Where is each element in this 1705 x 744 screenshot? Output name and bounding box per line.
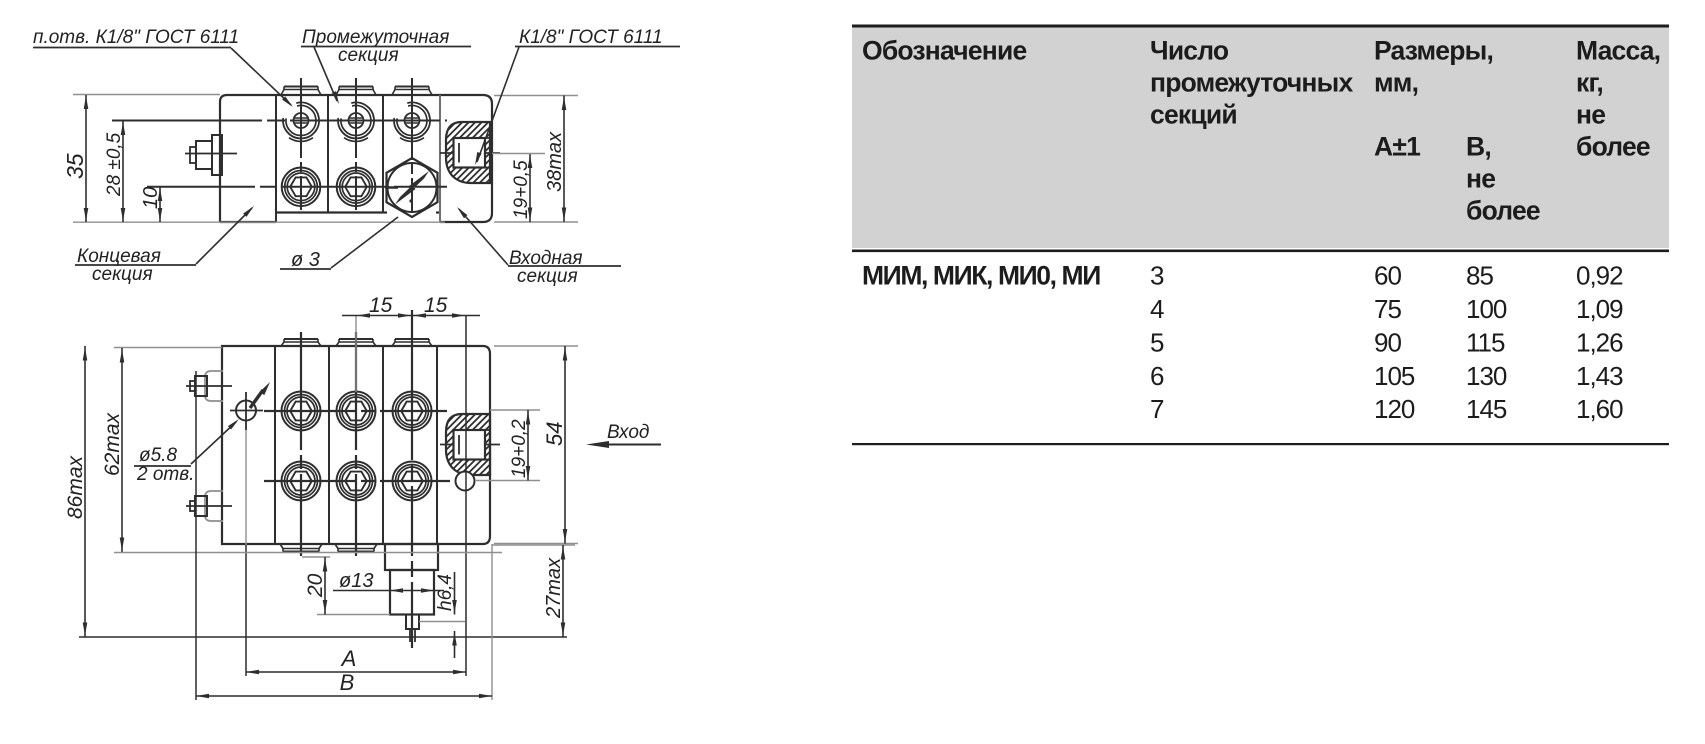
svg-text:20: 20 [304,573,327,598]
svg-text:Обозначение: Обозначение [862,36,1026,66]
svg-text:секция: секция [517,266,578,287]
svg-text:А±1: А±1 [1374,132,1420,162]
svg-text:15: 15 [424,294,448,317]
svg-text:А: А [340,646,357,671]
svg-text:85: 85 [1466,261,1493,291]
svg-text:не: не [1576,100,1605,130]
svg-text:К1/8" ГОСТ 6111: К1/8" ГОСТ 6111 [519,27,663,48]
svg-text:В,: В, [1466,132,1491,162]
svg-text:62max: 62max [101,411,124,476]
svg-text:19+0,2: 19+0,2 [509,419,530,478]
svg-text:35: 35 [62,153,88,179]
svg-text:4: 4 [1150,294,1164,324]
svg-text:60: 60 [1374,261,1401,291]
svg-text:В: В [340,670,355,695]
svg-text:более: более [1466,196,1540,226]
svg-text:100: 100 [1466,294,1507,324]
svg-text:1,09: 1,09 [1576,294,1623,324]
svg-text:мм,: мм, [1374,68,1418,98]
svg-text:не: не [1466,164,1495,194]
svg-text:3: 3 [1150,261,1164,291]
svg-text:Размеры,: Размеры, [1374,36,1493,66]
svg-text:15: 15 [369,294,393,317]
svg-text:86max: 86max [64,454,87,519]
svg-text:1,60: 1,60 [1576,394,1623,424]
svg-text:19+0,5: 19+0,5 [511,160,532,219]
svg-text:Число: Число [1150,36,1229,66]
svg-text:145: 145 [1466,394,1507,424]
svg-text:секция: секция [338,45,399,66]
svg-text:промежуточных: промежуточных [1150,68,1353,98]
svg-text:1,43: 1,43 [1576,361,1623,391]
svg-text:75: 75 [1374,294,1401,324]
svg-text:п.отв. К1/8" ГОСТ 6111: п.отв. К1/8" ГОСТ 6111 [33,27,239,48]
svg-text:более: более [1576,132,1650,162]
svg-text:130: 130 [1466,361,1507,391]
svg-text:h6,4: h6,4 [435,574,456,611]
svg-text:ø 3: ø 3 [291,249,320,271]
svg-text:МИМ, МИК, МИ0, МИ: МИМ, МИК, МИ0, МИ [862,261,1100,291]
svg-text:секция: секция [92,264,153,285]
svg-text:ø5.8: ø5.8 [139,445,177,466]
svg-text:115: 115 [1466,328,1505,358]
svg-text:54: 54 [542,422,567,446]
svg-text:38max: 38max [544,131,566,192]
svg-text:10: 10 [140,187,162,209]
svg-text:0,92: 0,92 [1576,261,1623,291]
svg-text:Масса,: Масса, [1576,36,1660,66]
svg-text:2 отв.: 2 отв. [136,464,194,485]
svg-text:5: 5 [1150,328,1164,358]
svg-text:кг,: кг, [1576,68,1603,98]
svg-text:6: 6 [1150,361,1164,391]
svg-text:120: 120 [1374,394,1415,424]
svg-text:27max: 27max [543,557,565,619]
svg-text:Вход: Вход [607,422,649,443]
svg-text:секций: секций [1150,100,1237,130]
svg-text:1,26: 1,26 [1576,328,1623,358]
svg-text:ø13: ø13 [339,570,373,592]
svg-text:90: 90 [1374,328,1401,358]
svg-text:28 ±0,5: 28 ±0,5 [104,132,125,197]
svg-text:105: 105 [1374,361,1415,391]
svg-text:7: 7 [1150,394,1164,424]
